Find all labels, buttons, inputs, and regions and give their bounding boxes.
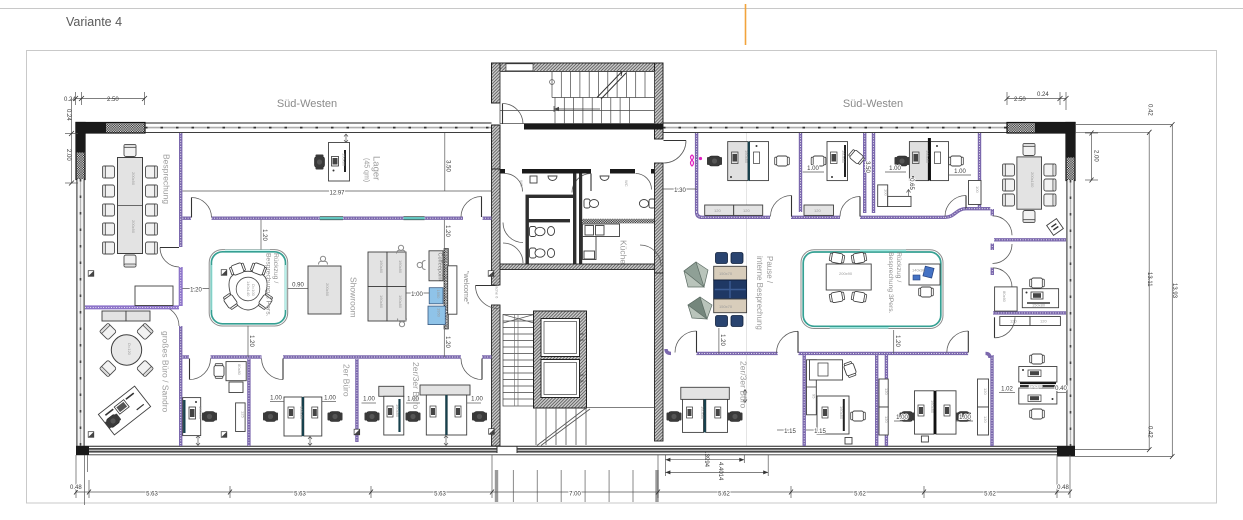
svg-text:großes Büro / Sandro: großes Büro / Sandro [161,331,171,413]
svg-text:0.48: 0.48 [70,485,82,491]
svg-text:200x90: 200x90 [131,172,136,186]
svg-text:120: 120 [983,416,988,423]
svg-text:1.15: 1.15 [814,429,826,435]
svg-text:0.24: 0.24 [64,97,76,103]
svg-text:160x80: 160x80 [700,406,705,420]
svg-text:160x80: 160x80 [744,150,749,164]
svg-text:0.24: 0.24 [65,109,71,121]
svg-text:Variante 4: Variante 4 [66,15,122,29]
svg-text:80x80: 80x80 [237,364,242,376]
svg-text:150x70: 150x70 [719,304,733,309]
svg-text:1.20: 1.20 [248,335,254,347]
svg-text:1.20: 1.20 [894,335,900,347]
svg-text:1.00: 1.00 [363,397,375,403]
svg-text:1.00: 1.00 [471,397,483,403]
svg-text:150x80: 150x80 [342,153,347,167]
svg-text:5.62: 5.62 [718,492,730,498]
svg-text:200x90: 200x90 [131,220,136,234]
svg-text:D=120: D=120 [127,343,132,356]
svg-text:1.20: 1.20 [719,334,725,346]
svg-text:1.00: 1.00 [411,292,423,298]
svg-text:120: 120 [884,416,889,423]
svg-text:5.62: 5.62 [854,492,866,498]
svg-text:200x100: 200x100 [1030,172,1035,188]
svg-text:Coffeepoint: Coffeepoint [437,253,443,282]
svg-text:13.11: 13.11 [1146,272,1152,287]
svg-text:5.62: 5.62 [984,492,996,498]
svg-text:160x80: 160x80 [299,406,304,420]
svg-text:Besprechung 3 Pers.: Besprechung 3 Pers. [265,253,272,317]
svg-text:3.50: 3.50 [864,161,870,173]
svg-text:125: 125 [241,411,246,418]
svg-text:120: 120 [743,208,750,213]
svg-text:Pause /: Pause / [765,256,774,284]
svg-text:160x80: 160x80 [841,150,846,164]
svg-text:5.63: 5.63 [434,492,446,498]
svg-text:Rückzug /: Rückzug / [272,253,279,283]
svg-text:WC: WC [624,180,629,187]
svg-text:160x80: 160x80 [395,404,400,418]
svg-text:Wandfläche 6: Wandfläche 6 [658,274,663,299]
svg-text:0.90: 0.90 [292,283,304,289]
svg-text:"welcome": "welcome" [462,271,471,305]
svg-text:0.24: 0.24 [1037,92,1049,98]
svg-text:5.63: 5.63 [146,492,158,498]
svg-text:1.20: 1.20 [444,336,450,348]
svg-text:Süd-Westen: Süd-Westen [843,98,903,110]
svg-text:140x140: 140x140 [246,281,251,297]
svg-text:0.40: 0.40 [1055,386,1067,392]
svg-text:1.02: 1.02 [1001,387,1013,393]
svg-text:1950: 1950 [437,308,442,318]
svg-text:0.65: 0.65 [908,178,914,190]
svg-text:0.42: 0.42 [1147,426,1153,438]
svg-text:160x80: 160x80 [379,260,384,274]
svg-text:100: 100 [884,189,889,196]
svg-text:0.48: 0.48 [1057,485,1069,491]
svg-text:1.00: 1.00 [954,169,966,175]
svg-text:1950: 1950 [436,290,441,300]
svg-text:150x70: 150x70 [719,271,733,276]
svg-text:Besprechung 3Pers.: Besprechung 3Pers. [887,252,894,314]
svg-text:160x80: 160x80 [925,150,930,164]
svg-text:1.15: 1.15 [784,429,796,435]
svg-text:120: 120 [814,208,821,213]
svg-text:120: 120 [1010,319,1017,324]
svg-text:200x90: 200x90 [839,271,853,276]
svg-text:160x80: 160x80 [839,406,844,420]
svg-text:150x80: 150x80 [1032,303,1046,308]
svg-text:120: 120 [983,388,988,395]
svg-text:13.93: 13.93 [1171,283,1177,299]
svg-text:1.30: 1.30 [674,188,686,194]
svg-text:interne Besprechung: interne Besprechung [755,256,764,330]
svg-text:1.00: 1.00 [270,396,282,402]
svg-text:140x90: 140x90 [912,268,926,273]
svg-text:1.20: 1.20 [261,229,267,241]
svg-text:Küche: Küche [619,240,629,264]
svg-text:1.00: 1.00 [807,166,819,172]
svg-text:2.00: 2.00 [1093,150,1099,162]
svg-text:WC: WC [519,180,524,187]
svg-text:2.50: 2.50 [1014,97,1026,103]
svg-text:120: 120 [1040,319,1047,324]
svg-text:(45 qm): (45 qm) [363,158,370,182]
svg-text:95: 95 [812,394,817,399]
svg-text:4.4014: 4.4014 [717,462,723,481]
svg-text:80x60: 80x60 [1002,291,1007,303]
svg-text:1.00: 1.00 [896,415,908,421]
svg-text:200x90: 200x90 [325,283,330,297]
svg-text:D=100: D=100 [251,284,256,297]
svg-text:1.20: 1.20 [190,288,202,294]
svg-text:5.63: 5.63 [294,492,306,498]
svg-text:Wandfläche 6: Wandfläche 6 [495,274,500,299]
svg-text:Rückzug /: Rückzug / [895,252,902,282]
svg-text:1.00: 1.00 [959,415,971,421]
svg-text:1.00: 1.00 [889,166,901,172]
svg-text:160x80: 160x80 [379,295,384,309]
svg-text:Süd-Westen: Süd-Westen [277,98,337,110]
svg-text:2.00: 2.00 [65,149,71,161]
svg-text:2er/3er Büro: 2er/3er Büro [411,362,421,410]
svg-text:160x80: 160x80 [398,260,403,274]
svg-text:Showroom: Showroom [349,277,359,318]
svg-text:3.50: 3.50 [445,160,451,172]
svg-text:Lager: Lager [371,156,382,180]
svg-text:2er/3er Büro: 2er/3er Büro [739,361,749,409]
svg-text:2er Büro: 2er Büro [342,364,352,397]
svg-text:.3994: .3994 [703,452,709,468]
svg-text:2.50: 2.50 [107,97,119,103]
svg-text:Besprechung: Besprechung [162,154,172,204]
svg-text:7.00: 7.00 [569,492,581,498]
svg-text:160x80: 160x80 [398,295,403,309]
svg-text:120: 120 [884,388,889,395]
svg-text:1.00: 1.00 [324,396,336,402]
svg-text:1.20: 1.20 [444,225,450,237]
svg-text:100: 100 [975,186,980,193]
svg-text:120: 120 [714,208,721,213]
svg-text:0.42: 0.42 [1147,104,1153,116]
svg-text:150x80: 150x80 [1029,384,1043,389]
svg-text:12.97: 12.97 [329,191,345,197]
svg-text:160x80: 160x80 [930,400,935,414]
